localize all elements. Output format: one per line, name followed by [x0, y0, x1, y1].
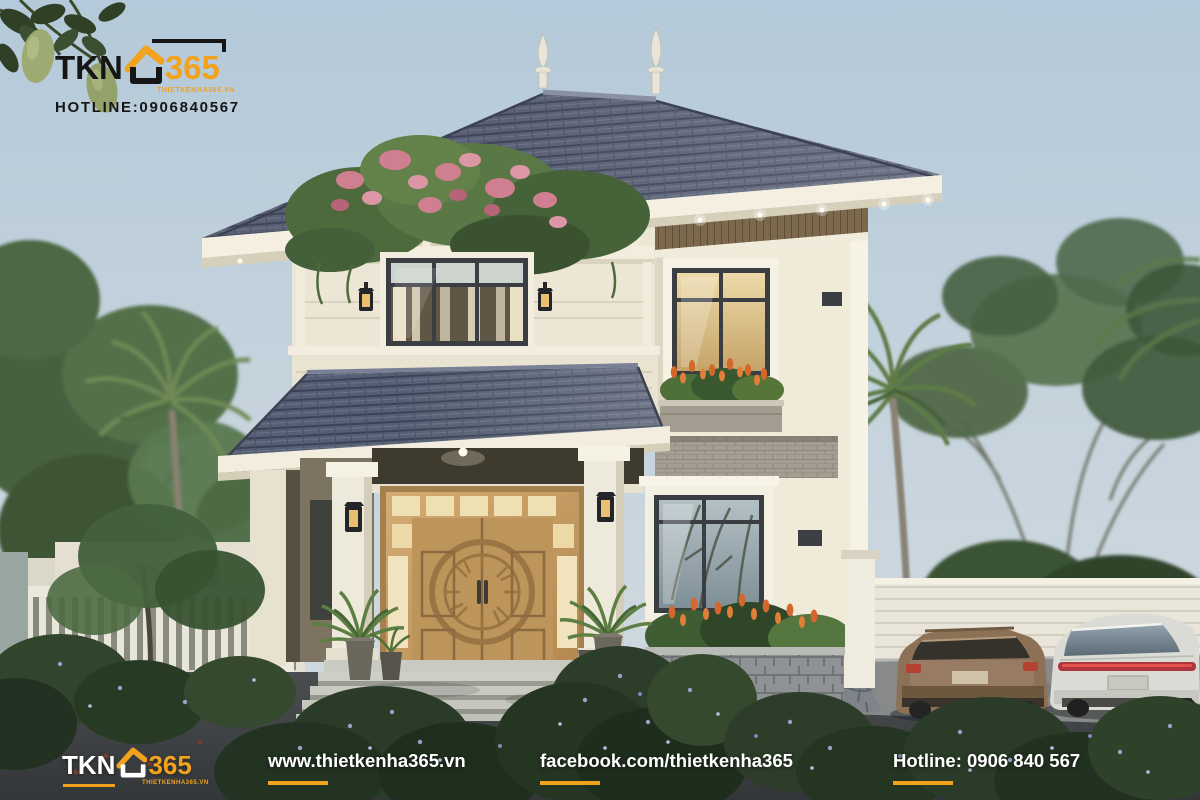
footer-facebook-text: facebook.com/thietkenha365: [540, 750, 793, 772]
villa-render-page: TKN 365 THIETKENHA365.VN HOTLINE:0906840…: [0, 0, 1200, 800]
footer-facebook-underline: [540, 781, 600, 785]
door-transom-glass: [392, 496, 556, 516]
brand-suffix: 365: [165, 51, 220, 84]
balcony-window: [380, 252, 534, 352]
wall-box-lower-right: [798, 530, 822, 546]
brand-line: [152, 39, 226, 43]
footer-hotline-underline: [893, 781, 953, 785]
footer-hotline-text: Hotline: 0906 840 567: [893, 750, 1080, 772]
footer-website-underline: [268, 781, 328, 785]
watermark-logo: TKN 365 THIETKENHA365.VN HOTLINE:0906840…: [55, 40, 240, 116]
ledgestone-band: [655, 436, 838, 478]
gate-pillar: [841, 550, 879, 688]
footer-brand-suffix: 365: [148, 752, 191, 778]
footer-brand-prefix: TKN: [62, 752, 115, 778]
footer-website: www.thietkenha365.vn: [268, 750, 466, 785]
footer-brand-house-icon: [116, 744, 147, 780]
brand-tagline: THIETKENHA365.VN: [157, 87, 235, 94]
footer-website-text: www.thietkenha365.vn: [268, 750, 466, 772]
column-lantern-left: [344, 502, 364, 532]
upper-right-window: [663, 258, 779, 386]
watermark-hotline: HOTLINE:0906840567: [55, 99, 240, 116]
wall-lamp-upper-right: [822, 292, 842, 306]
wooden-entrance-door: [380, 486, 585, 680]
footer-hotline: Hotline: 0906 840 567: [893, 750, 1080, 785]
footer-brand-underline: [63, 784, 115, 788]
villa-3d-render: [0, 0, 1200, 800]
column-lantern-right: [596, 492, 616, 522]
footer-brand-tagline: THIETKENHA365.VN: [142, 780, 209, 786]
brand-house-icon: [124, 41, 164, 87]
brand-line-hook: [222, 39, 226, 52]
footer-facebook: facebook.com/thietkenha365: [540, 750, 793, 785]
brand-prefix: TKN: [55, 51, 123, 84]
footer-logo: TKN 365 THIETKENHA365.VN: [62, 744, 192, 778]
